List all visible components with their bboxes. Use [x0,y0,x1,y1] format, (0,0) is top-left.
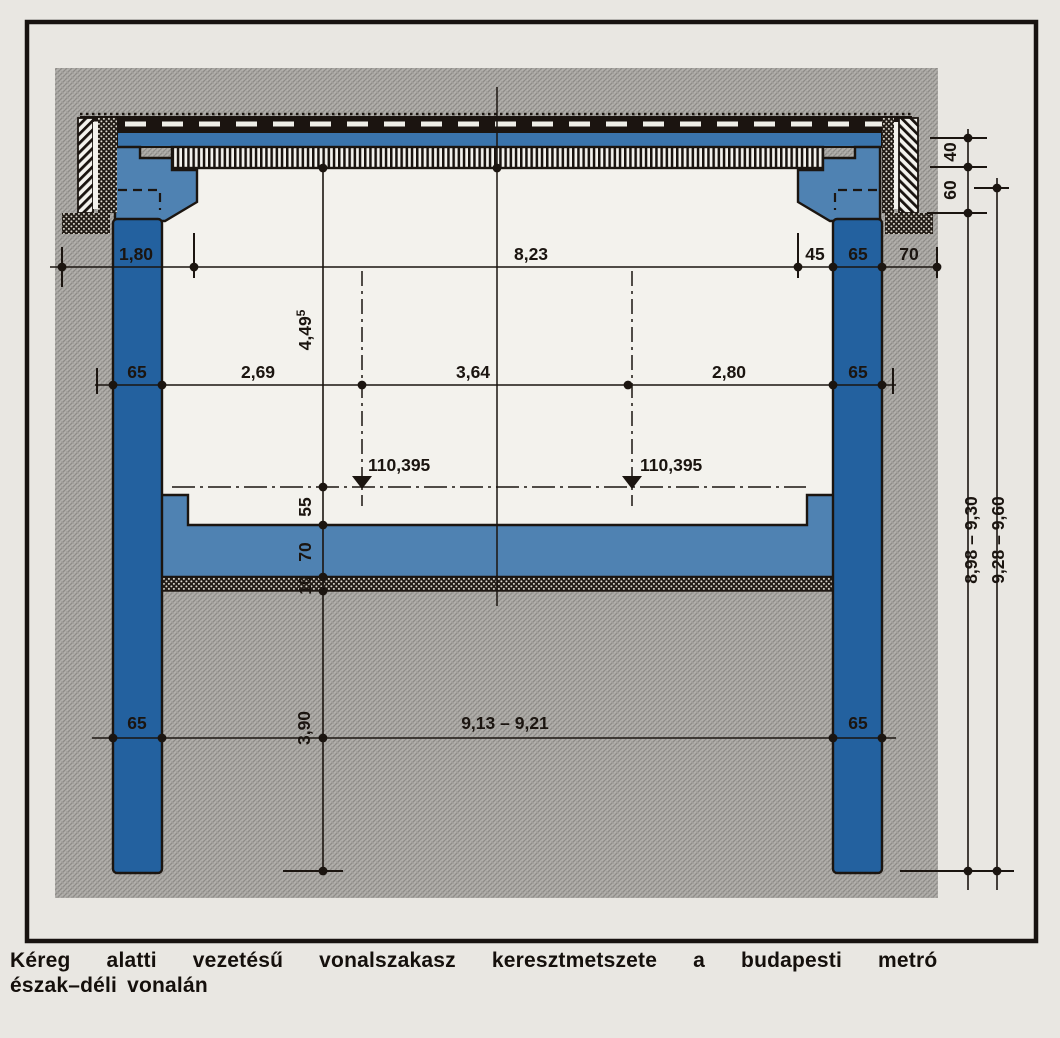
dim-label-wall-mid-right: 65 [848,362,868,382]
dim-dot [993,184,1002,193]
right-sheeting-foot [885,213,933,234]
dim-dot [319,521,328,530]
dim-label-wall-top-right: 65 [848,244,868,264]
rail-level-label-left: 110,395 [368,455,431,475]
dim-dot [190,263,199,272]
dim-label-left-track: 2,69 [241,362,275,382]
dim-dot [829,381,838,390]
roof-waterproofing-strip [117,132,882,147]
dim-dot [878,734,887,743]
figure-caption: Kéreg alatti vezetésű vonalszakasz keres… [10,948,1052,998]
dim-label-blinding: 10 [295,575,315,595]
dim-label-ledge: 45 [805,244,825,264]
dim-dot [933,263,942,272]
dim-dot [829,734,838,743]
dim-dot [624,381,633,390]
dim-label-rail-to-slab: 55 [295,497,315,517]
dim-dot [964,209,973,218]
dim-label-outer: 70 [899,244,919,264]
dim-label-clear-height-main: 4,49 [295,316,315,350]
dim-dot [964,134,973,143]
right-sheeting-hatch-bar [899,118,918,213]
dim-dot [964,163,973,172]
dim-dot [58,263,67,272]
dim-label-wall-mid-left: 65 [127,362,147,382]
left-sheeting-hatch-bar [78,118,93,213]
dim-dot [319,164,328,173]
dim-label-pile-right: 65 [848,713,868,733]
dim-label-left-offset: 1,80 [119,244,153,264]
dim-dot [358,381,367,390]
dim-dot [319,734,328,743]
caption-line-1: Kéreg alatti vezetésű vonalszakasz keres… [10,948,1052,973]
dim-dot [964,867,973,876]
left-sheeting-foot [62,213,110,234]
dim-label-depth-outer: 9,28 – 9,60 [988,496,1008,584]
dim-label-track-gap: 3,64 [456,362,490,382]
dim-dot [109,734,118,743]
dim-label-pile-depth: 3,90 [294,711,314,745]
dim-dot [878,381,887,390]
dim-label-pavement: 40 [940,142,960,162]
dim-dot [319,573,328,582]
dim-dot [829,263,838,272]
left-wall-pile [113,219,162,873]
tunnel-cross-section-drawing: 1,80 8,23 45 65 70 65 2,69 3,64 2,80 65 … [0,0,1060,945]
dim-dot [158,734,167,743]
left-sheeting-dot-bar [98,118,117,213]
roof-assembly [80,114,912,168]
left-sheeting-slot [93,122,98,209]
dim-label-clear-height-sup: 5 [294,309,308,316]
dim-dot [109,381,118,390]
dim-dot [319,867,328,876]
dim-label-depth-inner: 8,98 – 9,30 [961,496,981,584]
dim-label-pile-left: 65 [127,713,147,733]
dim-dot [878,263,887,272]
rail-level-label-right: 110,395 [640,455,703,475]
dim-dot [158,381,167,390]
dim-label-slab-thickness: 70 [295,542,315,562]
dim-dot [993,867,1002,876]
dim-label-clear-span: 8,23 [514,244,548,264]
dim-dot [319,483,328,492]
dim-label-pile-span: 9,13 – 9,21 [461,713,549,733]
dim-label-right-track: 2,80 [712,362,746,382]
dim-dot [493,164,502,173]
dim-label-cover: 60 [940,180,960,200]
caption-line-2: észak–déli vonalán [10,973,1052,998]
right-sheeting-dot-bar [882,118,894,213]
dim-dot [794,263,803,272]
dim-dot [319,587,328,596]
right-wall-pile [833,219,882,873]
